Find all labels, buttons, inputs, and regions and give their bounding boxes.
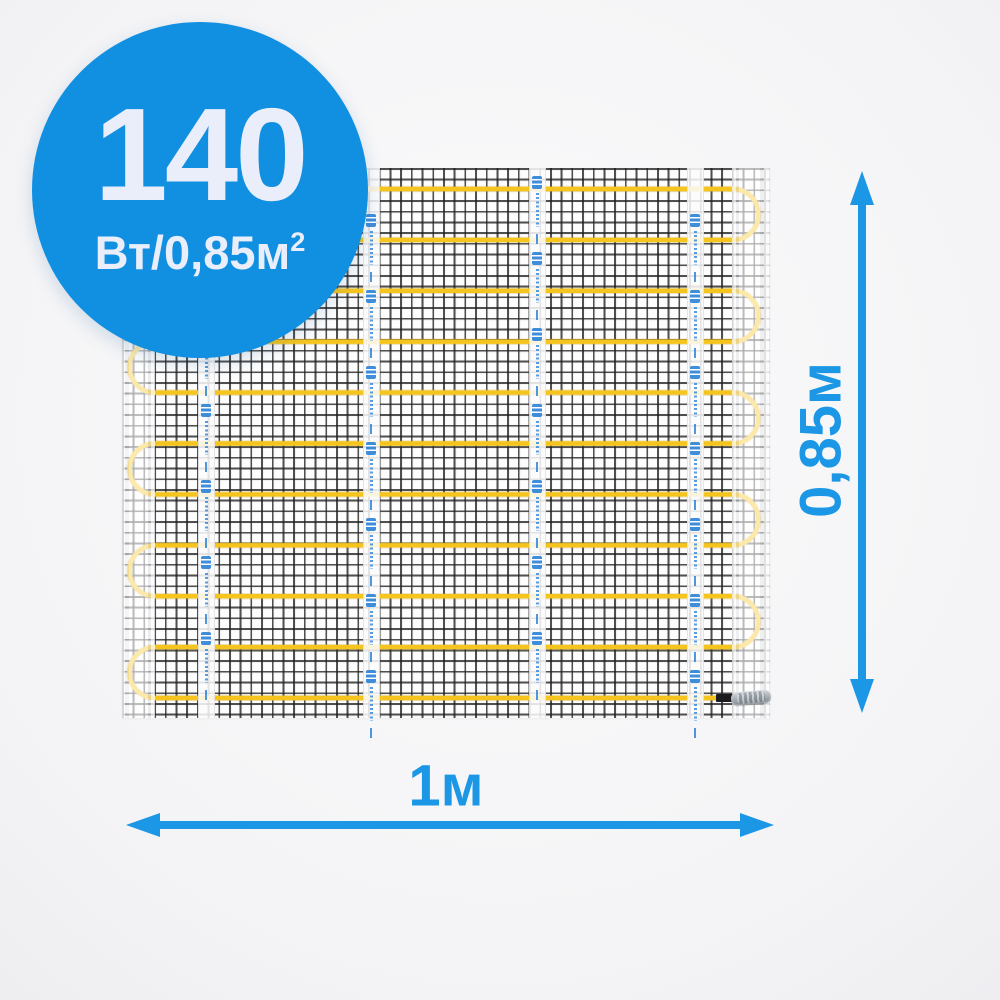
fixing-tape-strip <box>529 168 546 718</box>
tape-tick <box>205 462 207 472</box>
tape-microtext <box>370 231 373 265</box>
brand-logo-icon <box>532 328 542 341</box>
brand-logo-icon <box>366 214 376 227</box>
tape-microtext <box>536 269 539 303</box>
tape-microtext <box>694 535 697 569</box>
tape-tick <box>536 234 538 244</box>
brand-logo-icon <box>366 670 376 683</box>
tape-microtext <box>536 193 539 227</box>
brand-logo-icon <box>201 632 211 645</box>
brand-logo-icon <box>201 556 211 569</box>
tape-tick <box>694 272 696 282</box>
tape-microtext <box>694 383 697 417</box>
brand-logo-icon <box>532 404 542 417</box>
brand-logo-icon <box>366 442 376 455</box>
product-image: 140 Вт/0,85м2 0,85м 1м <box>0 0 1000 1000</box>
tape-tick <box>536 462 538 472</box>
tape-microtext <box>536 497 539 531</box>
arrow-shaft <box>858 201 866 683</box>
brand-logo-icon <box>532 480 542 493</box>
brand-logo-icon <box>690 670 700 683</box>
tape-tick <box>205 386 207 396</box>
tape-microtext <box>694 459 697 493</box>
power-value: 140 <box>94 86 305 225</box>
brand-logo-icon <box>366 290 376 303</box>
tape-tick <box>370 348 372 358</box>
brand-logo-icon <box>690 290 700 303</box>
brand-logo-icon <box>366 594 376 607</box>
brand-logo-icon <box>690 518 700 531</box>
tape-microtext <box>205 573 208 607</box>
tape-tick <box>694 500 696 510</box>
tape-microtext <box>370 535 373 569</box>
tape-tick <box>370 272 372 282</box>
tape-microtext <box>370 687 373 721</box>
tape-tick <box>370 500 372 510</box>
brand-logo-icon <box>201 404 211 417</box>
mat-right-edge-band <box>732 168 770 718</box>
brand-logo-icon <box>532 252 542 265</box>
tape-tick <box>694 424 696 434</box>
tape-microtext <box>536 573 539 607</box>
arrow-shaft <box>156 821 744 829</box>
arrow-up-icon <box>850 171 874 205</box>
brand-logo-icon <box>690 214 700 227</box>
tape-tick <box>536 538 538 548</box>
tape-microtext <box>536 345 539 379</box>
tape-tick <box>694 576 696 586</box>
tape-tick <box>205 614 207 624</box>
tape-tick <box>694 652 696 662</box>
tape-microtext <box>370 611 373 645</box>
tape-microtext <box>694 307 697 341</box>
brand-logo-icon <box>201 480 211 493</box>
brand-logo-icon <box>532 176 542 189</box>
brand-logo-icon <box>532 632 542 645</box>
tape-microtext <box>536 649 539 683</box>
connector-coupling <box>731 689 772 705</box>
tape-tick <box>694 728 696 738</box>
tape-tick <box>536 614 538 624</box>
tape-tick <box>205 538 207 548</box>
cable-connector <box>716 691 774 705</box>
power-unit-text: Вт/0,85м <box>95 226 291 279</box>
brand-logo-icon <box>690 442 700 455</box>
tape-microtext <box>694 611 697 645</box>
arrow-right-icon <box>740 813 774 837</box>
tape-microtext <box>694 687 697 721</box>
tape-tick <box>370 576 372 586</box>
brand-logo-icon <box>690 594 700 607</box>
brand-logo-icon <box>366 366 376 379</box>
brand-logo-icon <box>366 518 376 531</box>
tape-microtext <box>370 383 373 417</box>
tape-tick <box>205 690 207 700</box>
brand-logo-icon <box>690 366 700 379</box>
brand-logo-icon <box>532 556 542 569</box>
tape-microtext <box>694 231 697 265</box>
tape-microtext <box>205 649 208 683</box>
tape-tick <box>536 690 538 700</box>
tape-microtext <box>205 421 208 455</box>
power-unit-superscript: 2 <box>290 226 305 257</box>
tape-tick <box>370 424 372 434</box>
power-unit: Вт/0,85м2 <box>95 227 306 279</box>
arrow-down-icon <box>850 679 874 713</box>
arrow-left-icon <box>126 813 160 837</box>
tape-microtext <box>536 421 539 455</box>
tape-tick <box>370 728 372 738</box>
tape-tick <box>694 348 696 358</box>
tape-microtext <box>205 497 208 531</box>
tape-tick <box>370 652 372 662</box>
fixing-tape-strip <box>363 168 380 718</box>
tape-tick <box>536 386 538 396</box>
height-dimension-label: 0,85м <box>788 362 855 518</box>
fixing-tape-strip <box>687 168 704 718</box>
width-dimension-label: 1м <box>408 753 483 820</box>
tape-microtext <box>370 459 373 493</box>
power-badge: 140 Вт/0,85м2 <box>32 22 368 358</box>
tape-tick <box>536 310 538 320</box>
tape-microtext <box>370 307 373 341</box>
